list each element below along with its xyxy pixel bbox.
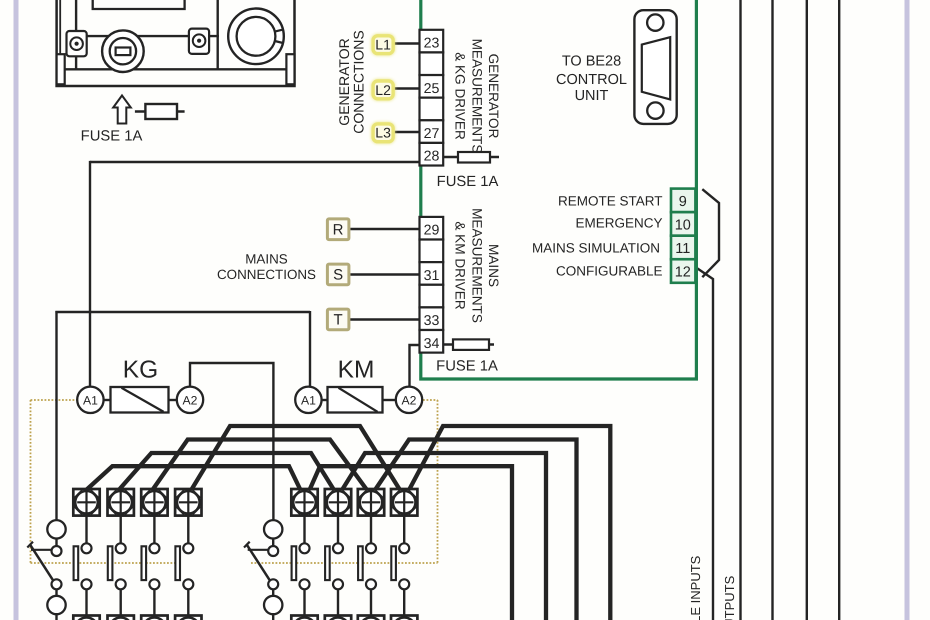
svg-text:29: 29 [424,223,440,239]
svg-text:MAINS: MAINS [486,244,501,287]
svg-text:33: 33 [424,313,440,329]
svg-text:& KG DRIVER: & KG DRIVER [453,52,468,140]
svg-text:L3: L3 [375,125,391,141]
svg-text:CONNECTIONS: CONNECTIONS [351,30,367,133]
svg-text:23: 23 [424,36,440,52]
svg-text:KM: KM [338,357,375,384]
svg-text:A1: A1 [301,393,316,407]
svg-text:S: S [333,267,343,284]
svg-text:R: R [333,221,344,238]
svg-text:A2: A2 [183,393,198,407]
svg-text:A2: A2 [402,393,417,407]
svg-text:FUSE 1A: FUSE 1A [436,358,498,374]
svg-text:GENERATOR: GENERATOR [486,54,501,139]
svg-text:GENERATOR: GENERATOR [336,38,352,125]
svg-text:CONTROL: CONTROL [556,72,627,88]
svg-text:L1: L1 [375,37,391,53]
svg-text:25: 25 [424,81,440,97]
svg-text:11: 11 [675,241,690,257]
svg-text:MEASUREMENTS: MEASUREMENTS [469,208,484,323]
svg-text:REMOTE START: REMOTE START [558,193,663,208]
svg-text:MAINS SIMULATION: MAINS SIMULATION [532,241,660,256]
svg-text:CONFIGURABLE OUTPUTS: CONFIGURABLE OUTPUTS [722,575,737,620]
svg-text:FUSE 1A: FUSE 1A [81,128,143,144]
svg-text:CONFIGURABLE: CONFIGURABLE [556,263,663,278]
svg-text:A1: A1 [83,393,98,407]
svg-text:MEASUREMENTS: MEASUREMENTS [469,39,484,154]
svg-text:CONFIGURABLE INPUTS: CONFIGURABLE INPUTS [688,555,703,620]
svg-text:UNIT: UNIT [575,88,609,104]
svg-text:10: 10 [675,218,691,234]
svg-text:CONNECTIONS: CONNECTIONS [217,267,316,282]
svg-text:T: T [334,312,343,329]
svg-text:FUSE 1A: FUSE 1A [437,174,499,190]
svg-text:MAINS: MAINS [245,252,287,267]
svg-text:KG: KG [123,357,158,384]
svg-text:12: 12 [675,265,691,281]
svg-text:9: 9 [679,194,687,210]
svg-text:31: 31 [424,268,440,284]
svg-text:TO BE28: TO BE28 [562,54,621,70]
svg-text:28: 28 [424,149,440,165]
svg-text:34: 34 [424,336,440,352]
svg-text:EMERGENCY: EMERGENCY [575,216,662,231]
svg-text:& KM DRIVER: & KM DRIVER [453,221,468,310]
svg-text:27: 27 [424,126,440,142]
svg-text:L2: L2 [375,82,391,98]
